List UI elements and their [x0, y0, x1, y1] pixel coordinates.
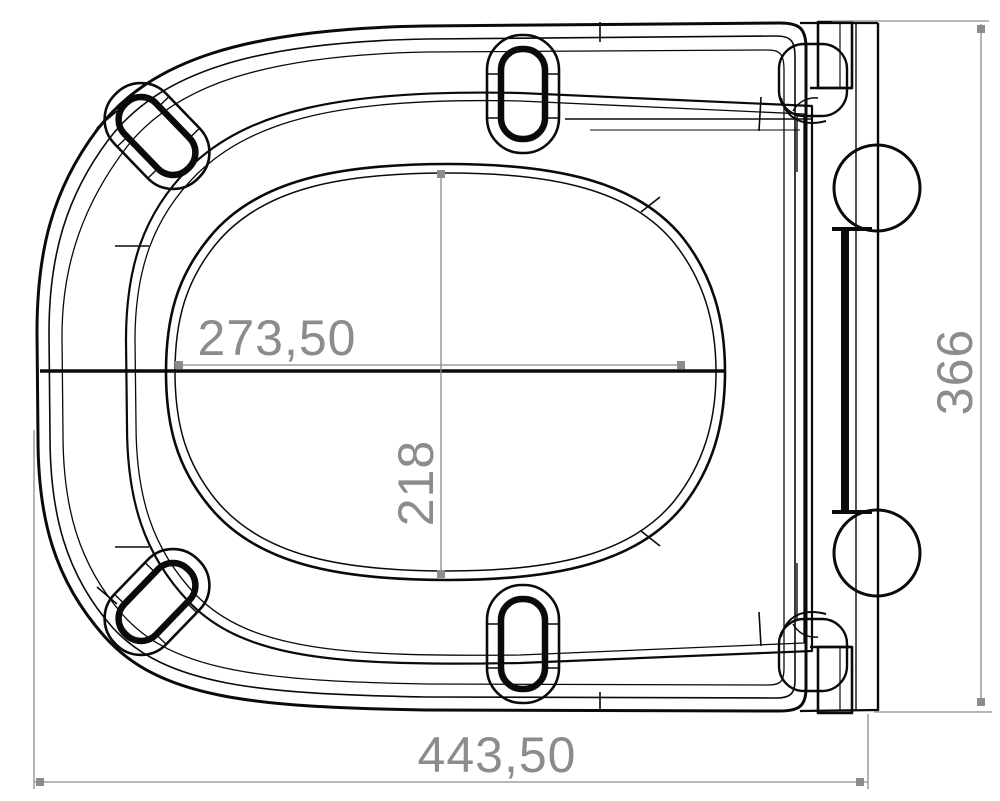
hinge-rod	[841, 229, 849, 512]
seat-technical-drawing: 273,50 218 366 443,50	[0, 0, 1000, 801]
dimension-inner-depth: 218	[388, 170, 445, 578]
hinge-bottom	[779, 510, 920, 713]
drawing-page: 273,50 218 366 443,50	[0, 0, 1000, 801]
dimension-inner-width: 273,50	[175, 310, 685, 369]
dimension-overall-width-label: 443,50	[418, 727, 577, 783]
bumper-bottom-center	[487, 585, 559, 703]
dimension-inner-depth-label: 218	[388, 440, 444, 526]
dimension-side-height-label: 366	[927, 329, 983, 415]
hinge-top	[779, 22, 920, 231]
seat-ring-outline	[126, 93, 812, 664]
bumpers	[90, 35, 559, 703]
cover-outline	[37, 23, 806, 711]
dimension-inner-width-label: 273,50	[198, 310, 357, 366]
hinge-assembly	[779, 22, 920, 713]
dimension-overall-width: 443,50	[34, 430, 868, 789]
